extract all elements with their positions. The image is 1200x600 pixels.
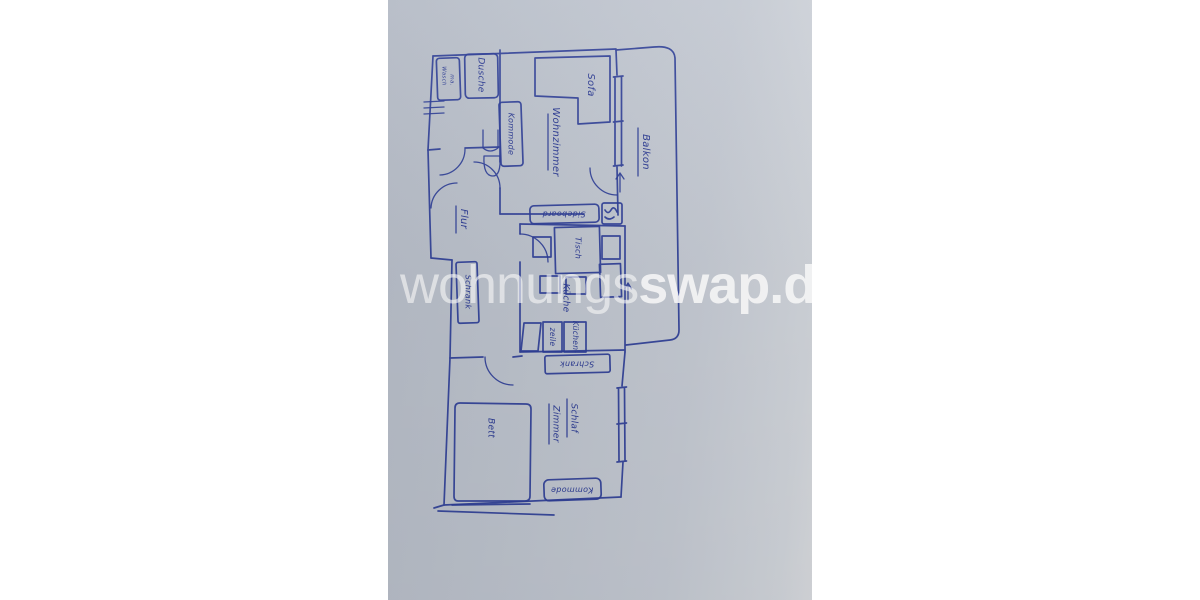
balkon-label: Balkon <box>640 134 651 170</box>
small-box <box>602 203 622 224</box>
watermark-text-bold: swap.de <box>638 255 844 315</box>
hall-door-arc <box>431 183 457 208</box>
schlafzimmer-label-line2: Zimmer <box>551 404 561 443</box>
kommode-living-label: Kommode <box>507 113 516 155</box>
wc-icon <box>484 156 500 176</box>
small-box-scribble <box>605 208 617 219</box>
watermark: wohnungsswap.de <box>400 258 844 312</box>
sideboard-label: Sideboard <box>542 210 586 219</box>
kuechenzeile-label-line2: zeile <box>548 327 557 347</box>
flur-label: Flur <box>458 209 469 230</box>
bett-label: Bett <box>486 418 496 438</box>
waschmaschine-label-line1: Wasch <box>441 66 447 86</box>
sofa-outline <box>535 56 610 124</box>
dusche-label: Dusche <box>476 57 486 92</box>
schlafzimmer-label-line1: Schlaf <box>569 403 579 434</box>
kommode-bedroom-label: Kommode <box>551 486 593 495</box>
bed-edge-line <box>452 504 530 505</box>
bedroom-door-arc <box>485 357 513 385</box>
bath-door-arc <box>440 149 465 175</box>
washing-machine-box <box>436 58 460 101</box>
kuechenzeile-label-line1: Küchen- <box>571 321 580 354</box>
wohnzimmer-label: Wohnzimmer <box>550 107 561 177</box>
paper-photo: Wasch ma. Dusche Sofa Wohnzimmer Balkon … <box>388 0 812 600</box>
waschmaschine-label-line2: ma. <box>449 74 455 85</box>
balcony-door-arc <box>590 168 617 195</box>
kitchen-unit-box <box>521 323 541 351</box>
radiator-icon <box>424 101 444 114</box>
sofa-label: Sofa <box>585 73 596 96</box>
watermark-text-normal: wohnungs <box>400 255 638 315</box>
schrank-bedroom-label: Schrank <box>560 360 595 369</box>
chair-box <box>533 237 551 257</box>
screenshot-page: Wasch ma. Dusche Sofa Wohnzimmer Balkon … <box>0 0 1200 600</box>
